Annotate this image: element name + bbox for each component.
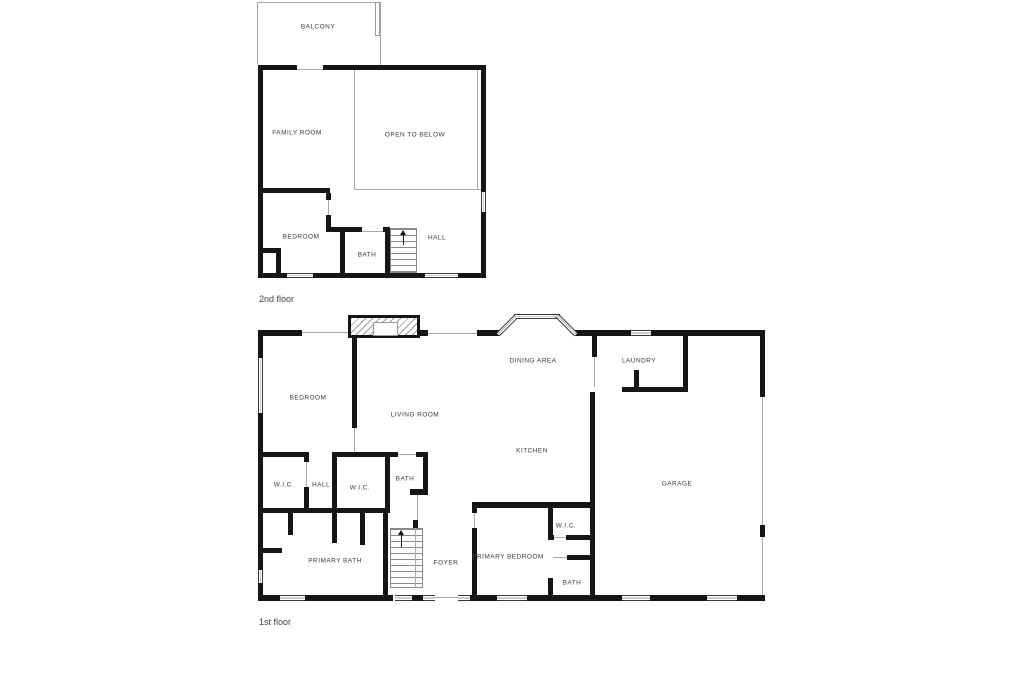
room-label-hall-1f: HALL [312,482,330,489]
balcony-edge [257,2,258,65]
window-opening [302,332,348,333]
wall [332,452,337,513]
window [423,595,435,601]
wall [412,595,423,601]
wall [323,65,486,70]
wall [332,513,337,543]
room-label-bath-2f: BATH [358,252,377,259]
balcony-edge [257,2,381,3]
wall [472,502,595,508]
wall [288,513,293,535]
door-opening [474,513,475,528]
wall [592,336,597,357]
front-door-opening [435,597,458,598]
door-opening [306,462,307,487]
window [497,595,527,601]
wall [527,595,622,601]
wall [760,525,765,537]
wall [326,193,331,200]
wall [258,188,330,193]
wall [481,65,486,278]
room-label-primary-suite-bath: BATH [563,580,582,587]
wall [360,513,365,545]
balcony-edge [380,2,381,65]
wall [622,387,688,392]
wall [258,330,302,336]
wall [276,248,281,273]
stairs-direction-arrow [401,535,402,547]
room-label-primary-bedroom: PRIMARY BEDROOM [472,554,544,561]
room-label-living-room: LIVING ROOM [391,412,439,419]
window [395,595,412,601]
fireplace-firebox [373,322,398,336]
window [287,273,313,278]
room-label-kitchen: KITCHEN [516,448,548,455]
floor-plan: BALCONY FAMILY ROOM OPEN TO BELOW BEDROO… [0,0,1024,683]
window [707,595,737,601]
door-opening [328,200,329,215]
room-label-bedroom-2f: BEDROOM [283,234,320,241]
stairs-1st-floor [390,528,423,588]
room-label-wic-primary: W.I.C. [556,523,576,530]
wall [340,232,345,273]
window [425,273,458,278]
garage-door-opening [762,397,763,525]
room-label-balcony: BALCONY [301,24,335,31]
window [481,192,486,212]
room-label-primary-bath: PRIMARY BATH [308,558,361,565]
wall [262,548,282,553]
window-opening [428,333,477,334]
wall [548,578,553,595]
room-label-wic-middle: W.I.C. [350,485,370,492]
door-opening [354,428,355,452]
door-opening [398,454,416,455]
door-opening [594,357,595,387]
door-opening [417,495,418,520]
wall [577,330,631,336]
room-label-dining-area: DINING AREA [510,358,557,365]
open-to-below-edge [354,70,355,190]
wall [737,595,765,601]
door-opening [362,231,383,232]
open-to-below-edge [354,189,481,190]
window [258,570,263,583]
window [458,595,470,601]
open-to-below-edge [477,70,478,190]
room-label-hall-bath: BATH [396,476,415,483]
wall [304,452,309,462]
window [631,330,651,336]
wall [258,65,263,278]
wall [590,392,595,600]
door-opening [553,557,567,558]
wall [332,452,389,457]
wall [383,508,388,600]
wall [566,535,593,540]
wall [651,330,765,336]
door-opening [554,537,566,538]
door-leaf [375,2,380,36]
wall [470,595,497,601]
bay-window [555,314,578,337]
floor-caption-2nd-floor: 2nd floor [259,294,294,304]
room-label-open-to-below: OPEN TO BELOW [385,132,445,139]
room-label-family-room: FAMILY ROOM [272,130,322,137]
room-label-bedroom-1f: BEDROOM [290,395,327,402]
wall [760,330,765,397]
wall [258,65,297,70]
wall [258,595,280,601]
wall [385,452,390,513]
wall [258,452,309,457]
garage-door-opening [762,537,763,595]
window [258,358,263,413]
wall [385,452,398,457]
stairs-divider [415,528,416,588]
wall [683,336,688,392]
bay-window [516,314,557,319]
wall [548,502,553,535]
room-label-foyer: FOYER [434,560,459,567]
wall [305,595,393,601]
room-label-garage: GARAGE [662,481,693,488]
floor-caption-1st-floor: 1st floor [259,617,291,627]
window [622,595,650,601]
wall [634,370,639,387]
wall [650,595,707,601]
door-opening [297,69,323,70]
room-label-laundry: LAUNDRY [622,358,656,365]
wall [567,555,593,560]
wall [352,336,357,428]
wall [410,489,428,495]
wall [258,508,389,513]
window [280,595,305,601]
stairs-direction-arrow [403,235,404,245]
room-label-wic-left: W.I.C. [274,482,294,489]
wall [420,330,428,336]
wall [472,528,477,595]
room-label-hall-2f: HALL [428,235,446,242]
